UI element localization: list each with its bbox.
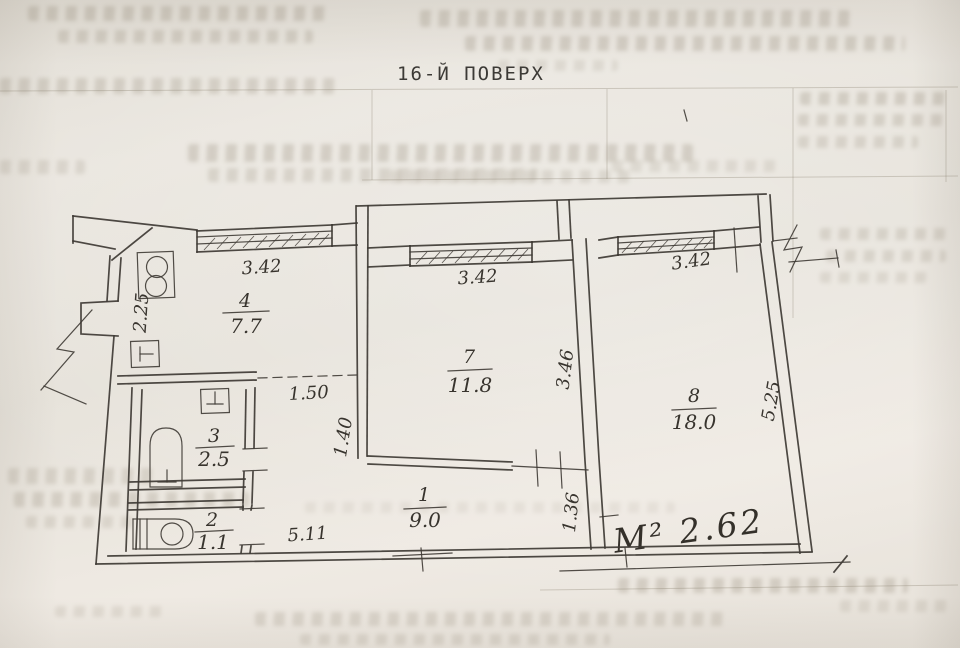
room-2-number: 2 xyxy=(205,509,218,531)
toilet-icon xyxy=(133,519,193,549)
dim-passage: 1.50 xyxy=(288,382,329,405)
room-3-area: 2.5 xyxy=(197,447,230,471)
room-2-area: 1.1 xyxy=(197,530,229,554)
kitchen-sink-icon xyxy=(131,341,160,368)
hall-left-wall xyxy=(96,336,114,564)
door-jamb-tick xyxy=(536,450,538,486)
dim-kitchen-window: 3.42 xyxy=(241,256,282,280)
room-4-kitchen: 4 7.7 3.42 2.25 1.50 xyxy=(118,223,357,405)
door-jamb-tick xyxy=(240,544,264,545)
door-jamb-tick xyxy=(243,448,267,449)
room-1-number: 1 xyxy=(418,484,430,506)
wall-break-symbol xyxy=(41,310,92,390)
dim-room7-left: 1.40 xyxy=(330,416,357,459)
room7-window xyxy=(410,242,532,266)
page-title-group: 16-Й ПОВЕРХ xyxy=(397,62,687,121)
room-1-area: 9.0 xyxy=(409,508,441,532)
dim-witness-tick xyxy=(421,548,423,571)
room-8-number: 8 xyxy=(688,385,700,407)
kitchen-bathroom-wall xyxy=(118,372,256,376)
room-8-area: 18.0 xyxy=(672,410,717,434)
room7-bottom-wall xyxy=(368,456,512,462)
dim-witness-tick xyxy=(734,228,737,272)
entry-door-recess xyxy=(81,301,118,336)
page-title: 16-Й ПОВЕРХ xyxy=(397,62,545,85)
room-7-area: 11.8 xyxy=(448,373,493,397)
dim-room7-window: 3.42 xyxy=(457,266,498,290)
stray-pen-mark xyxy=(684,110,687,121)
room-4-number: 4 xyxy=(238,290,251,312)
bathroom-block: 3 2.5 2 1.1 xyxy=(126,388,267,554)
door-jamb-tick xyxy=(560,452,562,488)
dimension-arrow-slash xyxy=(834,556,847,572)
bathtub-icon xyxy=(150,428,182,487)
balcony-strip xyxy=(357,194,773,242)
door-jamb-tick xyxy=(243,470,267,471)
dim-room8-right: 5.25 xyxy=(758,379,786,422)
room-8: 8 18.0 3.42 5.25 1.36 М² 2.62 xyxy=(559,225,839,561)
threshold-line xyxy=(393,553,452,556)
floor-plan-drawing: 16-Й ПОВЕРХ xyxy=(0,0,960,648)
scanned-floor-plan-page: 16-Й ПОВЕРХ xyxy=(0,0,960,648)
room7-door-opening xyxy=(512,466,588,470)
stove-icon xyxy=(137,251,175,298)
dim-hall-bottom: 5.11 xyxy=(287,523,328,547)
bleed-table-lines xyxy=(0,87,958,590)
washbasin-icon xyxy=(201,389,230,414)
bottom-dimension-line xyxy=(560,556,850,572)
room-4-area: 7.7 xyxy=(230,314,262,338)
handwritten-area-note: М² 2.62 xyxy=(610,501,767,561)
wall-break-symbol-right xyxy=(773,225,839,272)
dim-hall-room8-wall: 1.36 xyxy=(559,491,584,533)
dim-room7-right: 3.46 xyxy=(553,348,579,390)
room-3-number: 3 xyxy=(208,425,220,447)
dim-kitchen-side: 2.25 xyxy=(130,292,154,334)
open-passage-dashed-line xyxy=(258,375,356,378)
room-7-number: 7 xyxy=(463,346,476,368)
dim-room8-window: 3.42 xyxy=(670,248,713,274)
kitchen-window xyxy=(197,225,332,252)
